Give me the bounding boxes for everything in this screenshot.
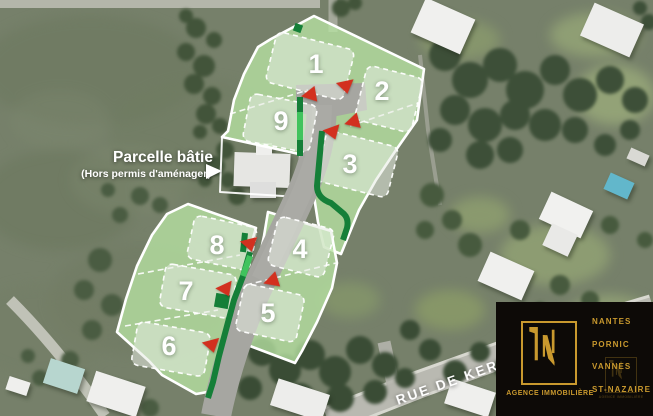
annotation-subtitle: (Hors permis d'aménager) [81,168,211,180]
lot-number-2: 2 [374,76,389,106]
lot-number-1: 1 [308,49,323,79]
logo-city: PORNIC [592,340,651,349]
lot-number-7: 7 [178,276,193,306]
lot-number-6: 6 [161,331,176,361]
lot-number-3: 3 [342,149,357,179]
lot-number-8: 8 [209,230,224,260]
logo-city-list: NANTES PORNIC VANNES ST-NAZAIRE [592,317,651,407]
lot-number-5: 5 [260,298,275,328]
logo-monogram-box [521,321,577,385]
logo-tagline: AGENCE IMMOBILIÈRE [498,390,602,397]
aerial-map: 123984756 Parcelle bâtie (Hors permis d'… [0,0,653,416]
lot-number-4: 4 [292,234,307,264]
annotation-title: Parcelle bâtie [113,149,213,166]
ln-monogram-icon [523,323,559,367]
logo-city: NANTES [592,317,651,326]
logo-city: VANNES [592,362,651,371]
lot-number-9: 9 [273,106,288,136]
agency-logo: AGENCE IMMOBILIÈRE NANTES PORNIC VANNES … [496,302,653,416]
logo-city: ST-NAZAIRE [592,385,651,394]
